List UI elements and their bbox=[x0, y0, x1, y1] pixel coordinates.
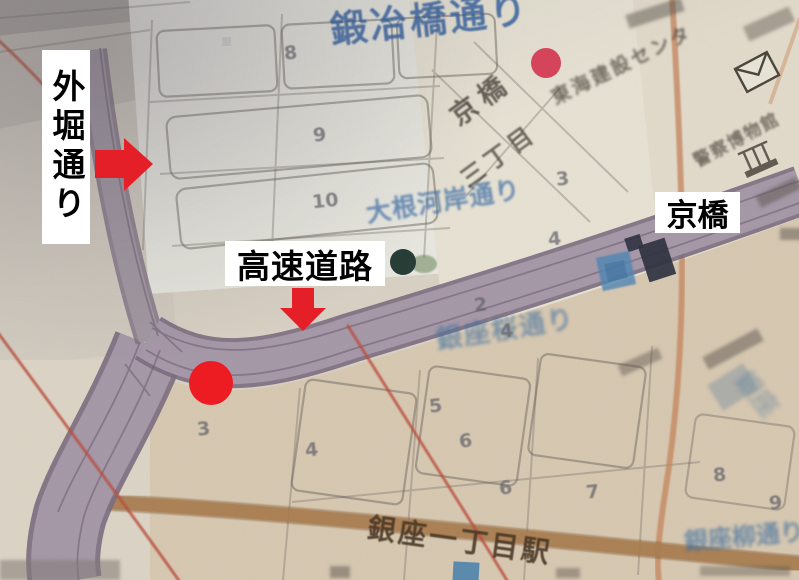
down-arrow-icon bbox=[280, 288, 326, 331]
small-red-dot-marker bbox=[531, 48, 561, 78]
right-arrow-icon bbox=[95, 138, 153, 191]
annotated-map-photo: 鍛冶橋通り 大根河岸通り 銀座桜通り 銀座柳通り 銀座 京橋 三丁目 東海建設セ… bbox=[0, 0, 799, 580]
large-red-dot-marker bbox=[189, 361, 233, 405]
annotation-layer: 外堀通り 高速道路 京橋 bbox=[0, 0, 799, 580]
